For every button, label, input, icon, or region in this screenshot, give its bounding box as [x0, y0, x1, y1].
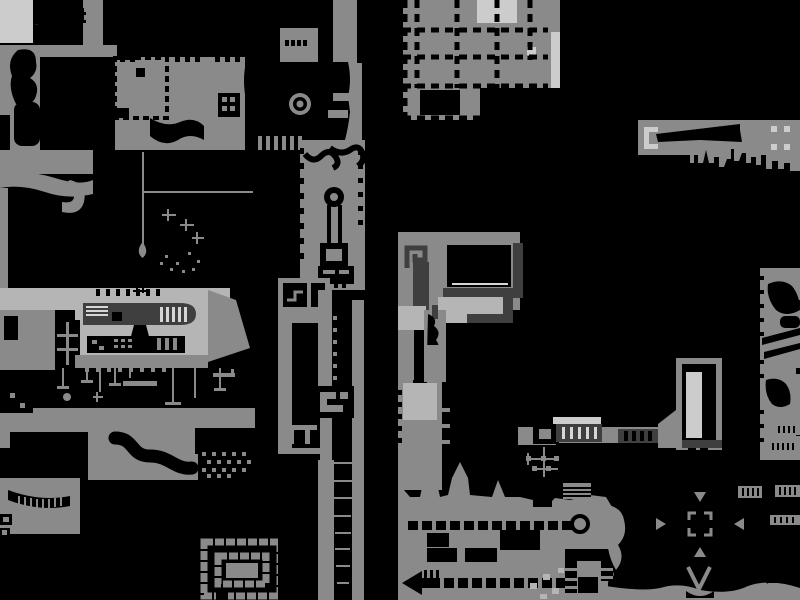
dashed-room: [115, 58, 167, 118]
grate-1: [556, 424, 602, 442]
world-map: [0, 0, 800, 600]
ladder-box: [563, 483, 591, 499]
world-map-canvas: [0, 0, 800, 600]
rubble: [198, 448, 256, 480]
boss-eye-marker: [289, 93, 311, 115]
region-central-column: [300, 140, 365, 290]
grate-2: [618, 429, 662, 443]
corridor2-ticks: [440, 578, 556, 588]
